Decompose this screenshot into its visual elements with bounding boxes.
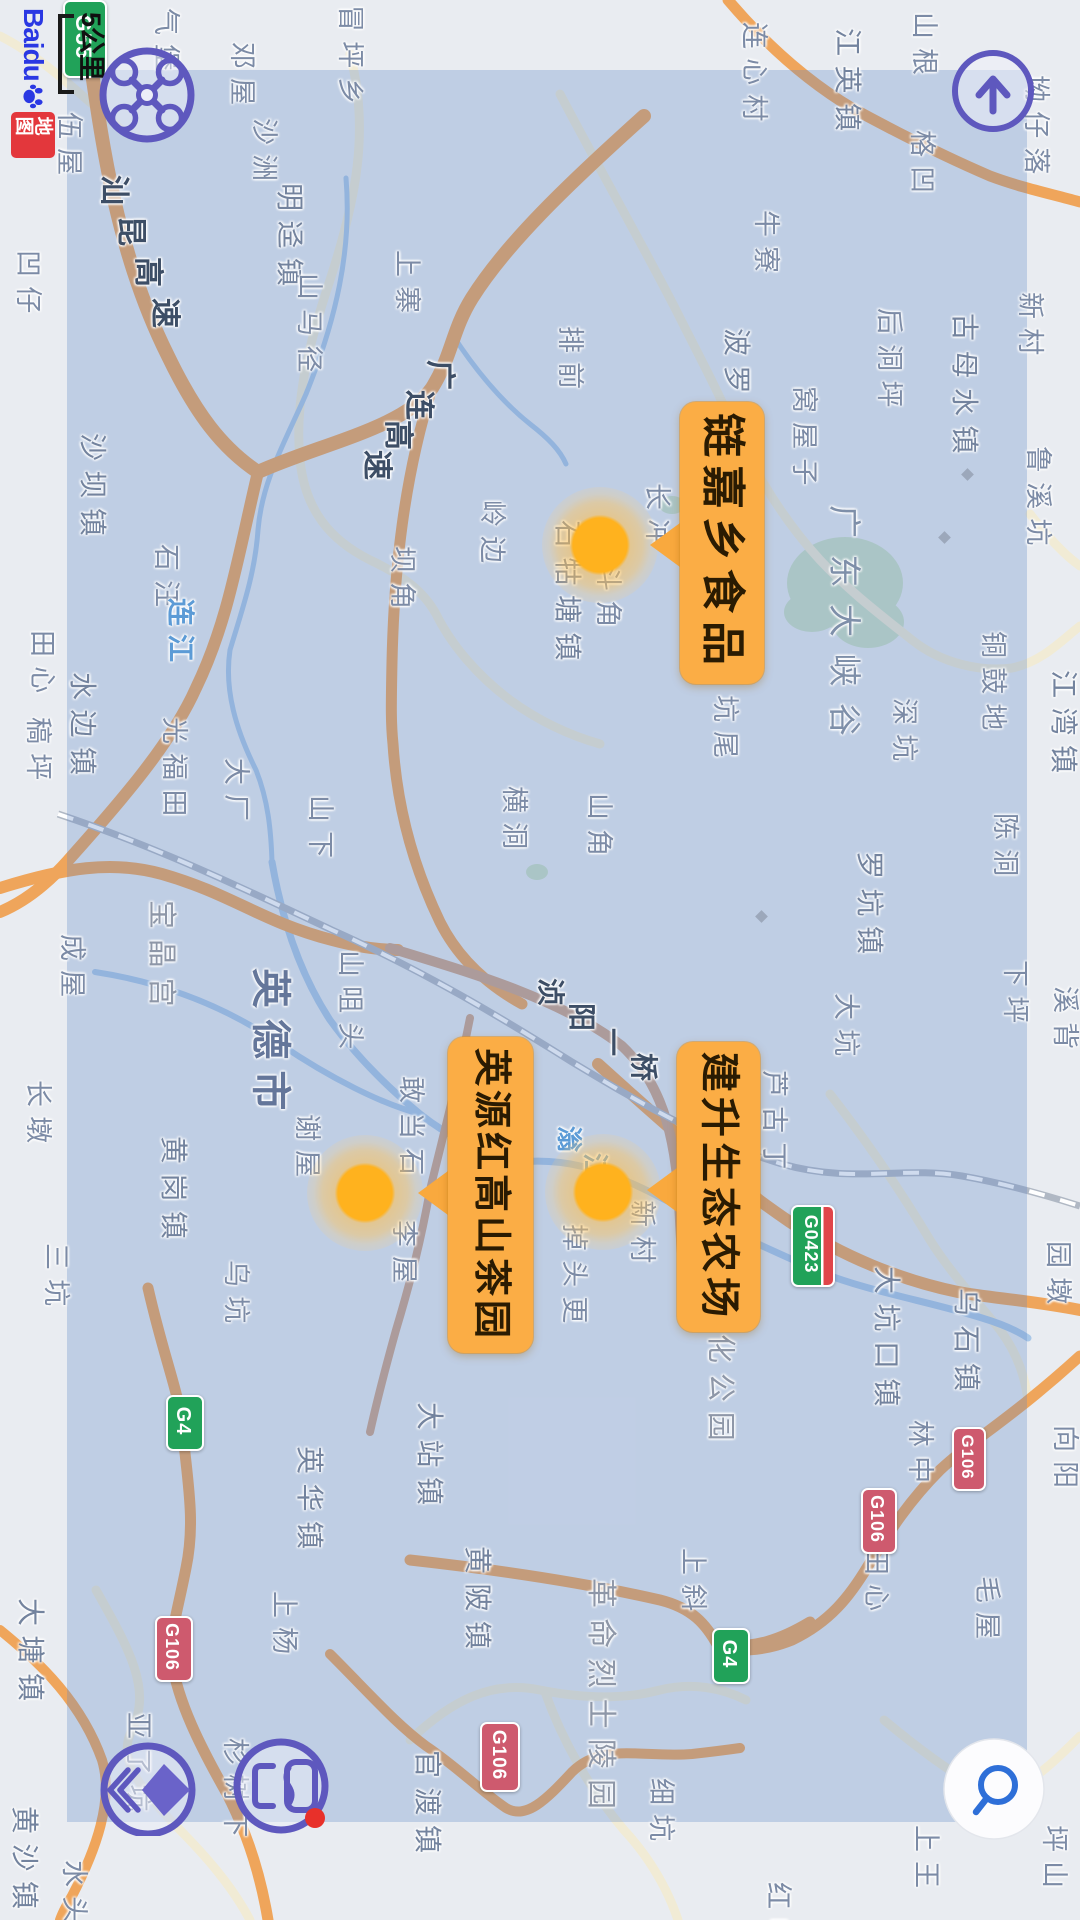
place-label: 水头 [60, 1860, 87, 1920]
place-label: 上斜 [679, 1548, 706, 1620]
place-label: 芦古丁 [760, 1070, 787, 1179]
logo-badge: 地图 [11, 112, 55, 158]
place-label: 长墩 [24, 1080, 51, 1152]
messages-button[interactable] [231, 1736, 335, 1840]
poi-marker-dot[interactable] [542, 487, 658, 603]
place-label: 英华镇 [295, 1446, 323, 1559]
place-label: 林中 [906, 1420, 933, 1492]
unread-badge [305, 1808, 325, 1828]
route-shield-code: G106 [863, 1490, 891, 1548]
road-name-label: 连 [403, 390, 433, 420]
place-label: 田心 [28, 630, 55, 702]
drone-button[interactable] [95, 43, 199, 147]
place-label: 向阳 [1051, 1425, 1078, 1497]
place-label: 上王 [912, 1825, 939, 1897]
place-label: 毛屋 [973, 1576, 1000, 1648]
place-label: 成屋 [58, 934, 85, 1006]
layers-button[interactable] [100, 1740, 196, 1836]
poi-marker-dot[interactable] [545, 1134, 661, 1250]
route-shield-g4: G4 [166, 1395, 204, 1451]
poi-marker-dot[interactable] [307, 1135, 423, 1251]
place-label: 黄岗镇 [159, 1136, 187, 1249]
compass-up-button[interactable] [949, 47, 1037, 135]
minor-poi-dot [961, 468, 974, 481]
place-label: 山下 [306, 795, 333, 867]
map-labels-layer: 冒坪乡邓屋气堡伍屋沙洲明迳镇凹仔山根连心村江英镇格凹坳仔落牛寮上寨山马径排前波罗… [0, 0, 1080, 1920]
poi-label[interactable]: 链嘉乡食品 [680, 402, 764, 684]
place-label: 江英镇 [833, 28, 861, 141]
place-label: 大坑 [832, 993, 859, 1065]
place-label: 三坑 [42, 1243, 69, 1315]
road-name-label: 速 [149, 298, 179, 328]
road-name-label: 桥 [629, 1053, 657, 1081]
place-label: 大塘镇 [16, 1598, 44, 1711]
place-label: 窝屋子 [790, 386, 817, 495]
road-name-label: 汕 [98, 175, 128, 205]
route-shield-code: G106 [157, 1618, 187, 1676]
place-label: 山马径 [295, 273, 322, 382]
poi-label-text: 英源红高山茶园 [448, 1037, 533, 1353]
poi-label[interactable]: 英源红高山茶园 [448, 1037, 533, 1353]
place-label: 新村 [1016, 292, 1043, 364]
place-label: 宝晶宫 [146, 900, 175, 1017]
road-name-label: 速 [361, 450, 391, 480]
route-shield-code: G4 [168, 1397, 198, 1445]
place-label: 化公园 [705, 1334, 734, 1451]
poi-label-text: 链嘉乡食品 [680, 402, 764, 684]
water-name-label: 连 [166, 598, 194, 626]
search-button[interactable] [940, 1735, 1048, 1843]
minor-poi-dot [938, 531, 951, 544]
route-shield-code: G0423 [793, 1207, 829, 1281]
place-label: 横洞 [500, 786, 527, 858]
place-label: 上杨 [270, 1591, 297, 1663]
place-label: 江湾镇 [1049, 670, 1077, 783]
route-shield-g106: G106 [952, 1427, 986, 1491]
place-label: 凹仔 [14, 250, 41, 322]
place-label: 乌坑 [222, 1260, 249, 1332]
place-label: 红峰 [764, 1882, 791, 1920]
logo-latin-text: Baidu [17, 8, 49, 81]
poi-label-pointer [418, 1171, 448, 1215]
place-label: 罗坑镇 [855, 851, 883, 964]
place-label: 陈洞 [991, 813, 1018, 885]
road-name-label: 广 [424, 360, 454, 390]
place-label: 邓屋 [228, 42, 255, 114]
place-label: 后洞坪 [875, 308, 902, 417]
place-label: 下坪 [1001, 960, 1028, 1032]
place-label: 官渡镇 [413, 1750, 441, 1863]
place-label: 水边镇 [68, 672, 96, 785]
place-label: 溪背 [1051, 986, 1078, 1058]
road-name-label: 昆 [115, 216, 145, 246]
place-label: 大站镇 [415, 1402, 443, 1515]
place-label: 沙洲 [250, 118, 277, 190]
route-shield-code: G4 [714, 1630, 744, 1678]
route-shield-code: G106 [954, 1429, 980, 1485]
place-label: 大厂 [222, 758, 249, 830]
road-name-label: 浈 [536, 978, 564, 1006]
place-label: 冒坪乡 [336, 5, 363, 114]
poi-label[interactable]: 建升生态农场 [677, 1042, 760, 1332]
place-label: 上寨 [393, 250, 420, 322]
place-label: 古母水镇 [950, 313, 978, 463]
road-name-label: 一 [598, 1028, 626, 1056]
place-label: 园墩 [1044, 1241, 1071, 1313]
place-label: 坝角 [388, 546, 415, 618]
place-label: 田心 [862, 1548, 889, 1620]
road-name-label: 高 [132, 257, 162, 287]
route-shield-g0423: G0423 [791, 1205, 835, 1287]
place-label: 黄陂镇 [463, 1546, 491, 1659]
place-label: 鲁溪坑 [1024, 446, 1051, 555]
baidu-maps-logo: Baidu 地图 [6, 8, 60, 158]
place-label: 深坑 [890, 698, 917, 770]
route-shield-g4: G4 [712, 1628, 750, 1684]
place-label: 牛寮 [752, 210, 779, 282]
place-label: 沙坝镇 [78, 433, 106, 546]
place-label: 岭边 [478, 500, 505, 572]
place-label: 格凹 [908, 130, 935, 202]
place-label: 连心村 [740, 22, 767, 131]
route-shield-g106: G106 [861, 1488, 897, 1554]
place-label: 细坑 [647, 1778, 674, 1850]
place-label: 黄沙镇 [10, 1806, 38, 1919]
place-label: 排前 [556, 326, 583, 398]
screen: 冒坪乡邓屋气堡伍屋沙洲明迳镇凹仔山根连心村江英镇格凹坳仔落牛寮上寨山马径排前波罗… [0, 0, 1080, 1920]
place-label: 山角 [585, 793, 612, 865]
place-label: 光福田 [160, 717, 187, 826]
minor-poi-dot [755, 910, 768, 923]
place-label: 坑尾 [711, 695, 738, 767]
place-label: 山根 [910, 12, 937, 84]
road-name-label: 阳 [567, 1003, 595, 1031]
place-label: 大坑口镇 [872, 1266, 900, 1416]
poi-label-pointer [647, 1168, 677, 1212]
place-label: 乌石镇 [952, 1288, 980, 1401]
place-label: 广东大峡谷 [828, 505, 861, 753]
water-name-label: 江 [166, 634, 194, 662]
place-label: 铜鼓地 [979, 631, 1006, 740]
poi-label-pointer [650, 523, 680, 567]
place-label: 英德市 [250, 968, 290, 1122]
place-label: 革命烈士陵园 [585, 1578, 615, 1819]
route-shield-code: G106 [482, 1724, 514, 1786]
scale-bar [58, 14, 74, 94]
map-canvas[interactable]: 冒坪乡邓屋气堡伍屋沙洲明迳镇凹仔山根连心村江英镇格凹坳仔落牛寮上寨山马径排前波罗… [0, 0, 1080, 1920]
paw-icon [20, 84, 46, 109]
place-label: 稿坪 [24, 717, 51, 789]
place-label: 山咀头 [336, 950, 363, 1059]
route-shield-g106: G106 [480, 1722, 520, 1792]
route-shield-g106: G106 [155, 1616, 193, 1682]
poi-label-text: 建升生态农场 [677, 1042, 760, 1332]
road-name-label: 高 [382, 420, 412, 450]
